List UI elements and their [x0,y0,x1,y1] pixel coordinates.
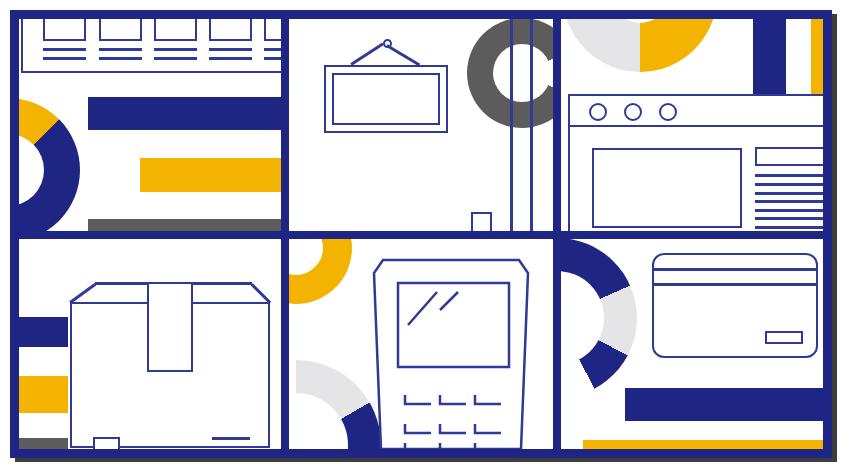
table-column-card [43,19,86,41]
browser-dot-icon [589,103,607,121]
browser-text-line [755,217,823,220]
box-bottom-mark [212,437,250,440]
accent-bar-navy [753,19,786,95]
table-text-line [264,57,281,60]
donut-hole [561,271,604,365]
browser-text-line [755,226,823,229]
table-column-card [99,19,142,41]
table-text-line [209,48,252,51]
accent-bar-gray [19,438,68,449]
half-donut-gray-yellow [563,19,717,72]
payment-terminal-drawing [289,239,553,449]
donut-hole [19,134,44,206]
sign-string-left [350,43,383,66]
panel-browser [561,19,823,231]
browser-text-line [755,183,823,186]
panel-payment-terminal [289,239,553,449]
table-column-card [264,19,281,41]
panel-hanging-sign [289,19,553,231]
table-text-line [99,48,142,51]
box-flap-right-slant [251,283,271,303]
navy-gray-ring [561,239,637,398]
sign-frame-inner [332,73,440,125]
table-text-line [43,57,86,60]
accent-bar-navy [19,317,68,347]
browser-text-line [755,174,823,177]
pole-line [510,19,513,231]
pole-line [530,19,533,231]
browser-sidebar-box [755,147,823,166]
table-text-line [264,48,281,51]
table-column-card [154,19,197,41]
box-flap-left-slant [69,283,96,303]
card-signature-box [765,331,803,344]
browser-text-line [755,200,823,203]
browser-content-pane [592,148,742,228]
accent-bar-yellow [19,376,68,413]
browser-titlebar [570,96,823,127]
table-text-line [154,57,197,60]
donut-hole [493,44,551,102]
browser-dot-icon [624,103,642,121]
card-stripe-line [654,283,816,286]
panel-spreadsheet [19,19,281,231]
accent-bar-yellow [583,440,823,449]
sign-string-right [386,44,420,66]
box-label [93,437,120,449]
donut-hole [612,19,668,23]
accent-bar-gray [88,219,281,231]
accent-bar-yellow [140,158,281,192]
pole-base-block [471,212,492,231]
panel-credit-card [561,239,823,449]
table-text-line [43,48,86,51]
donut-arc-yellow-navy [19,98,80,231]
accent-bar-navy [625,388,823,421]
table-column-card [209,19,252,41]
card-stripe-line [654,268,816,271]
accent-bar-navy [88,97,281,130]
box-tape-strip [147,282,193,372]
table-text-line [154,48,197,51]
illustration-frame [10,10,832,458]
browser-text-line [755,209,823,212]
sign-frame-outer [324,65,448,133]
browser-text-line [755,192,823,195]
panel-shipping-box [19,239,281,449]
table-text-line [209,57,252,60]
browser-window [568,94,823,231]
table-text-line [99,57,142,60]
credit-card-drawing [652,253,818,358]
accent-bar-yellow [811,19,823,97]
browser-dot-icon [659,103,677,121]
